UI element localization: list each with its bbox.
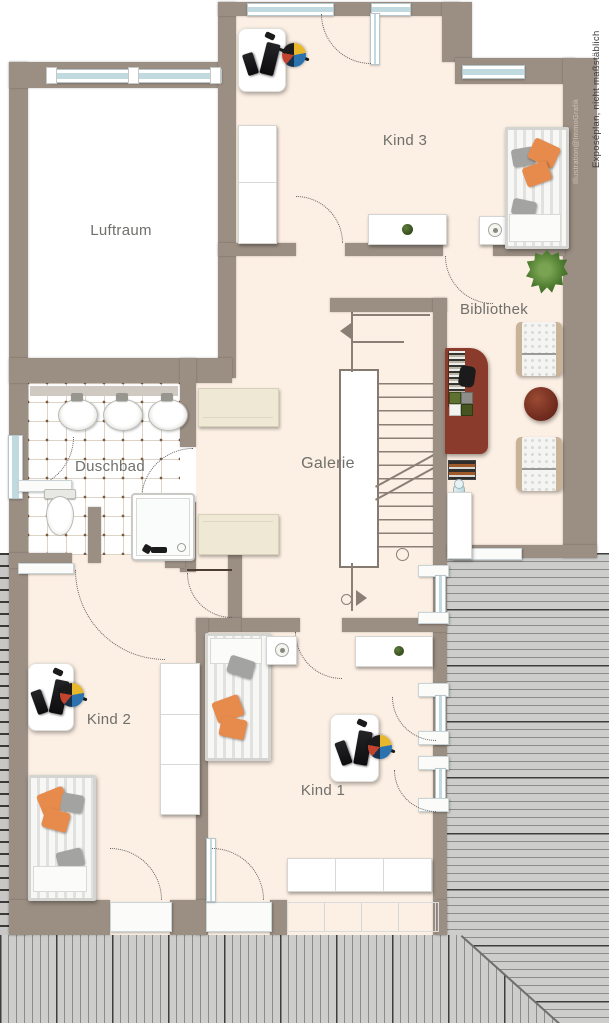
- room-label-kind2: Kind 2: [49, 711, 169, 728]
- stair-up-arrow: [340, 323, 351, 339]
- chair-seat: [368, 735, 392, 759]
- bed-kind3: [505, 127, 569, 249]
- dresser-line: [203, 521, 273, 522]
- armchair-cushion: [522, 322, 556, 376]
- room-label-kind3: Kind 3: [375, 132, 435, 149]
- wall-duschbad-east-a: [180, 358, 196, 447]
- chair-seat: [282, 43, 306, 67]
- bed-kind2: [28, 775, 96, 901]
- floor-lamp-top: [454, 479, 464, 489]
- armchair-seam: [522, 468, 556, 470]
- armchair-cushion: [522, 437, 556, 491]
- sideboard-divider: [383, 859, 384, 891]
- window-post: [46, 67, 57, 84]
- dresser-galerie-north: [198, 388, 279, 427]
- wardrobe-kind2: [160, 663, 200, 815]
- mouse-icon: [264, 31, 276, 41]
- desk-kind3: [238, 28, 286, 92]
- door-south-kind1: [206, 902, 272, 932]
- window-kind3-dormer: [370, 13, 380, 65]
- wardrobe-divider: [161, 764, 199, 765]
- armchair-south: [516, 437, 562, 491]
- stair-guide-line-bottom-v: [351, 563, 353, 611]
- door-south-kind2: [110, 902, 172, 932]
- chair-seat: [60, 683, 84, 707]
- keyboard-icon: [242, 52, 259, 76]
- roof-west-edge: [0, 553, 9, 935]
- watermark-exposeplan: Exposéplan, nicht maßstäblich: [591, 8, 602, 168]
- bed-kind1: [205, 633, 271, 761]
- wall-stair-north: [330, 298, 447, 312]
- keyboard-icon: [30, 689, 49, 715]
- wall-duschbad-stub: [88, 507, 101, 563]
- shower-drain: [177, 543, 186, 552]
- stair-guide-line-top-h1: [352, 314, 430, 316]
- window-south-kind1: [287, 902, 439, 932]
- window-post: [210, 67, 221, 84]
- blanket: [33, 866, 87, 892]
- shower-fixture: [142, 544, 153, 555]
- wall-luftraum-kind3: [218, 2, 236, 378]
- pillow-gray: [60, 792, 85, 814]
- wall-kind1-north-a: [242, 618, 300, 632]
- nightstand-kind1: [266, 636, 297, 665]
- pillow-orange: [218, 716, 248, 741]
- wall-luftraum-south: [9, 358, 232, 383]
- keyboard-icon: [334, 740, 353, 766]
- sideboard-divider: [335, 859, 336, 891]
- book-stack-icon: [448, 460, 476, 480]
- door-leaf-galerie: [18, 563, 74, 574]
- desk-box-white: [449, 404, 461, 416]
- wall-south-a: [9, 900, 110, 935]
- armchair-north: [516, 322, 562, 376]
- office-chair-kind1: [366, 732, 396, 764]
- backsplash: [30, 386, 178, 396]
- wardrobe-kind3: [238, 125, 277, 244]
- door-leaf-corridor: [187, 569, 232, 571]
- watermark-illustrator: Illustration@ImmoGrafik: [571, 84, 580, 184]
- faucet-icon: [116, 393, 128, 401]
- lamp-dot: [280, 648, 285, 653]
- stair-down-arrow: [356, 590, 367, 606]
- cupboard-bibliothek: [447, 492, 472, 559]
- room-label-duschbad: Duschbad: [50, 458, 170, 475]
- room-label-bibliothek: Bibliothek: [444, 301, 544, 318]
- sideboard-kind3: [368, 214, 447, 245]
- desk-box-olive: [461, 404, 473, 416]
- wall-south-b: [170, 900, 206, 935]
- window-post: [128, 67, 139, 84]
- sink-3: [148, 399, 188, 431]
- plant-icon: [402, 224, 413, 235]
- room-label-kind1: Kind 1: [263, 782, 383, 799]
- office-chair-kind2: [58, 680, 88, 712]
- office-chair-kind3: [280, 40, 310, 72]
- sink-2: [103, 399, 143, 431]
- mouse-icon: [356, 718, 368, 728]
- window-corridor-east: [435, 575, 446, 614]
- stair-entry-circle: [341, 594, 352, 605]
- faucet-icon: [161, 393, 173, 401]
- floor-plan: Kind 3 Bibliothek Galerie Duschbad: [0, 0, 609, 1023]
- stair-handrail-post: [396, 548, 409, 561]
- shower-fixture: [151, 547, 167, 553]
- window-kind1-east-b: [435, 768, 446, 800]
- faucet-icon: [71, 393, 83, 401]
- blanket: [509, 214, 561, 242]
- shower-tray: [131, 493, 195, 561]
- stair-guide-line-top-h2: [352, 341, 404, 343]
- wardrobe-divider: [239, 182, 276, 183]
- room-label-galerie: Galerie: [268, 455, 388, 473]
- wall-south-c: [270, 900, 287, 935]
- wall-kind3-south-a: [218, 243, 296, 256]
- desk-box-green: [449, 392, 461, 404]
- sink-1: [58, 399, 98, 431]
- armchair-seam: [522, 353, 556, 355]
- desk-chair-bibliothek: [458, 365, 477, 388]
- laptop-icon: [259, 42, 280, 76]
- round-table: [524, 387, 558, 421]
- dresser-galerie-south: [198, 514, 279, 555]
- lamp-dot: [493, 228, 498, 233]
- wall-north-step: [442, 2, 472, 62]
- sideboard-kind1-south: [287, 858, 432, 892]
- plant-icon: [394, 646, 404, 656]
- desk-box-gray: [461, 392, 473, 404]
- mouse-icon: [52, 667, 64, 677]
- sideboard-kind1-north: [355, 636, 433, 667]
- sill-corridor-bottom: [418, 612, 449, 624]
- room-label-luftraum: Luftraum: [51, 222, 191, 239]
- dresser-line: [203, 417, 273, 418]
- window-kind3-east: [462, 65, 525, 79]
